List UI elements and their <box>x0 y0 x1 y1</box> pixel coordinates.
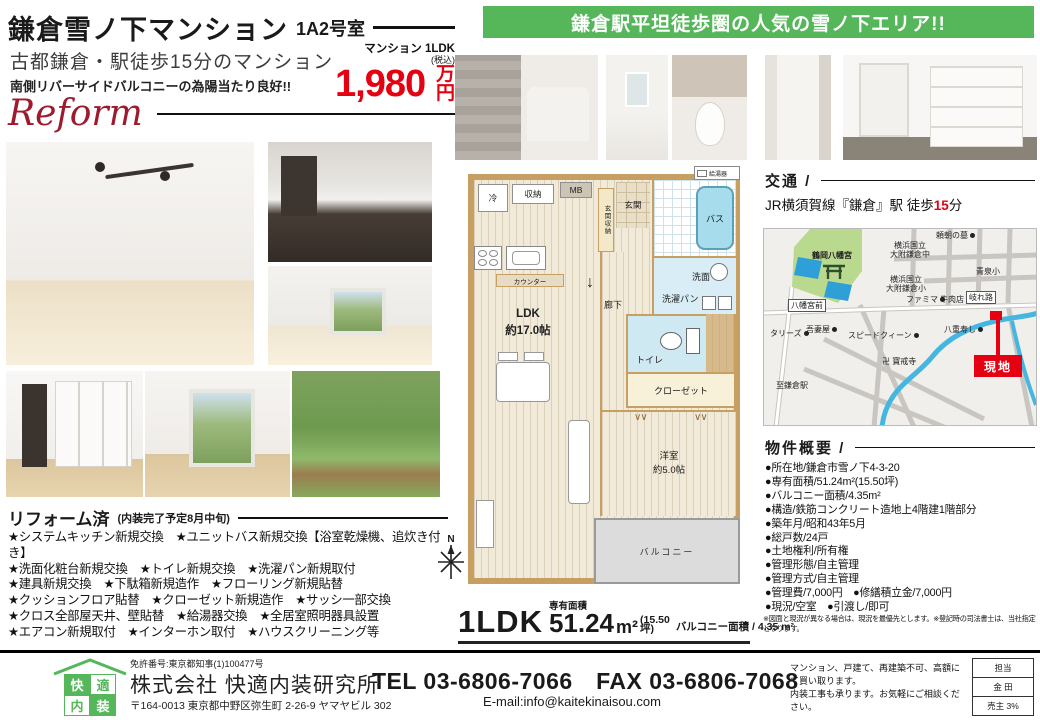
torii-icon <box>822 263 846 279</box>
staff-name: 金 田 <box>973 678 1033 697</box>
layout-type: 1LDK <box>458 608 543 636</box>
overview-item: ●バルコニー面積/4.35m² <box>765 490 1037 504</box>
footer-divider <box>0 650 1040 653</box>
photo-bathroom <box>455 55 598 160</box>
tsubo-area: (15.50坪) <box>640 616 670 636</box>
overview-item: ●土地権利/所有権 <box>765 545 1037 559</box>
compass-star-icon <box>436 545 466 579</box>
chair-icon <box>498 352 518 361</box>
page-title: 鎌倉雪ノ下マンション <box>8 8 288 47</box>
overview-heading-rule <box>855 447 1035 449</box>
access-heading: 交通 / <box>765 170 811 191</box>
toilet-bowl <box>695 102 725 146</box>
stone-tile-wall <box>455 55 521 160</box>
washer-pan-icon <box>702 296 732 310</box>
access-section-header: 交通 / <box>765 170 1035 191</box>
sales-pitch: マンション、戸建て、再建築不可、高額にて買い取ります。 内装工事も承ります。お気… <box>790 662 965 714</box>
overview-item: ●管理形態/自主管理 <box>765 559 1037 573</box>
overview-disclaimer: ※図面と現況が異なる場合は、現況を最優先とします。※登記時の司法書士は、当社指定… <box>763 614 1039 634</box>
bathtub-plan: バス <box>696 186 734 250</box>
company-name: 株式会社 快適内装研究所 <box>130 669 379 699</box>
map-label-shrine: 鶴岡八幡宮 <box>812 251 852 260</box>
site-location-badge: 現地 <box>974 355 1022 377</box>
window-mark: ∨∨ <box>694 412 707 423</box>
entrance: 玄関 <box>616 182 650 228</box>
access-route: JR横須賀線『鎌倉』駅 徒歩15分 <box>765 194 962 214</box>
photo-toilet <box>672 55 747 160</box>
toilet-label: トイレ <box>636 353 663 366</box>
map-label-temple: 卍 寶戒寺 <box>882 357 916 366</box>
bathtub <box>527 87 590 142</box>
window-box-icon <box>476 500 494 548</box>
map-label-speedqueen: スピードクィーン <box>848 331 919 340</box>
area-banner: 鎌倉駅平坦徒歩圏の人気の雪ノ下エリア!! <box>483 6 1034 38</box>
map-label-seisen-elementary: 青泉小 <box>976 267 1000 276</box>
tel-fax: TEL 03-6806-7066 FAX 03-6806-7068 <box>372 662 772 696</box>
reform-item-line: ★エアコン新規取付 ★インターホン取付 ★ハウスクリーニング等 <box>8 625 455 641</box>
spotlight-icon <box>160 171 170 181</box>
basin-icon <box>710 263 728 281</box>
pitch-line-2: 内装工事も承ります。お気軽にご相談ください。 <box>790 688 965 714</box>
fridge-space: 冷 <box>478 184 508 212</box>
overview-item: ●築年月/昭和43年5月 <box>765 518 1037 532</box>
photo-corridor <box>765 55 831 160</box>
reform-heading: リフォーム済 <box>8 505 110 530</box>
overview-section-header: 物件概要 / <box>765 437 1035 458</box>
map-label-azumaya: 吾妻屋 <box>806 325 837 334</box>
overview-heading: 物件概要 / <box>765 437 845 458</box>
map-label-to-kamakura-sta: 至鎌倉駅 <box>776 381 808 390</box>
access-heading-rule <box>821 180 1035 182</box>
commission-cell: 売主 3% <box>973 697 1033 715</box>
photo-washbasin <box>606 55 668 160</box>
overview-item: ●総戸数/24戸 <box>765 532 1037 546</box>
closet-room: クローゼット <box>626 372 736 408</box>
stove-icon <box>474 246 502 270</box>
photo-room-balcony-window <box>145 371 290 497</box>
reform-script-logo: Reform <box>8 96 143 132</box>
shoe-cabinet <box>930 66 1023 148</box>
logo-char: 装 <box>90 695 116 716</box>
toilet-side-wall <box>706 314 736 372</box>
photo-living-room-2 <box>268 266 432 365</box>
overview-item: ●管理方式/自主管理 <box>765 573 1037 587</box>
kitchen-cabinet <box>281 156 317 216</box>
balcony: バルコニー <box>594 518 740 584</box>
photo-entrance <box>843 55 1037 160</box>
walk-minutes: 15 <box>934 198 949 213</box>
overview-item: ●現況/空室 ●引渡し/即可 <box>765 601 1037 615</box>
staff-table-header: 担当 <box>973 659 1033 678</box>
balcony-window <box>189 389 256 467</box>
washbasin-mirror <box>625 72 650 108</box>
chair-icon <box>524 352 544 361</box>
logo-char: 適 <box>90 674 116 695</box>
reform-heading-rule <box>238 517 448 519</box>
entrance-storage: 玄関収納 <box>598 188 614 252</box>
map-label-tullys: タリーズ <box>770 329 809 338</box>
overview-item: ●管理費/7,000円 ●修繕積立金/7,000円 <box>765 587 1037 601</box>
map-label-bus-stop: 八幡宮前 <box>788 299 826 312</box>
logo-char: 内 <box>64 695 90 716</box>
window-mark: ∨∨ <box>634 412 647 423</box>
window <box>330 288 386 336</box>
reform-item-line: ★システムキッチン新規交換 ★ユニットバス新規交換【浴室乾燥機、追炊き付き】 <box>8 530 455 562</box>
laundry-pan-label: 洗濯パン <box>662 292 698 305</box>
compass: N <box>436 534 466 584</box>
price-type-label: マンション 1LDK <box>335 40 455 56</box>
logo-char: 快 <box>64 674 90 695</box>
map-label-sushi: 八重寿し <box>944 325 983 334</box>
ldk-label: LDK 約17.0帖 <box>478 306 578 341</box>
storage-box: 収納 <box>512 184 554 204</box>
reform-item-line: ★クッションフロア貼替 ★クローゼット新規造作 ★サッシ一部交換 <box>8 593 455 609</box>
reform-item-line: ★洗面化粧台新規交換 ★トイレ新規交換 ★洗濯パン新規取付 <box>8 562 455 578</box>
map-label-junior-high: 横浜国立 大附鎌倉中 <box>890 241 930 259</box>
kitchen-counter: カウンター <box>496 274 564 287</box>
meter-box: MB <box>560 182 592 198</box>
hallway-arrow-icon: ↓ <box>586 274 594 292</box>
hallway <box>600 252 626 410</box>
map-label-elementary: 横浜国立 大附鎌倉小 <box>886 275 926 293</box>
reform-section-header: リフォーム済 (内装完了予定8月中旬) <box>8 505 448 530</box>
photo-living-room <box>6 142 254 365</box>
company-logo: 快 適 内 装 <box>58 660 122 716</box>
dark-door <box>22 384 47 467</box>
water-heater-box: 給湯器 <box>694 166 740 180</box>
reform-script-row: Reform <box>8 96 455 132</box>
price-box: マンション 1LDK 1,980 (税込) 万円 <box>335 40 455 103</box>
water-heater-label: 給湯器 <box>709 169 727 178</box>
photo-kitchen <box>268 142 432 262</box>
area-unit: m² <box>616 619 638 635</box>
floor-plan: 冷 収納 MB 玄関収納 玄関 バス 給湯器 洗面 洗濯パン トイレ クローゼッ <box>458 170 750 594</box>
email-address: E-mail:info@kaitekinaisou.com <box>372 694 772 709</box>
dining-table-icon <box>496 362 550 402</box>
plan-summary: 1LDK 専有面積 51.24 m² (15.50坪) バルコニー面積 / 4.… <box>458 598 750 644</box>
area-map: 鶴岡八幡宮 頼朝の墓 横浜国立 大附鎌倉中 横浜国立 大附鎌倉小 青泉小 八幡宮… <box>763 228 1037 426</box>
toilet-room: トイレ <box>626 314 706 372</box>
overview-list: ●所在地/鎌倉市雪ノ下4-3-20 ●専有面積/51.24m²(15.50坪) … <box>765 462 1037 615</box>
company-address: 〒164-0013 東京都中野区弥生町 2-26-9 ヤマヤビル 302 <box>130 698 391 713</box>
photo-riverside-view <box>292 371 440 497</box>
unit-number: 1A2号室 <box>296 15 365 41</box>
ceiling-track-light <box>105 163 194 179</box>
hallway-label: 廊下 <box>604 298 622 311</box>
reform-subheading: (内装完了予定8月中旬) <box>118 510 230 526</box>
compass-north-label: N <box>436 534 466 545</box>
spotlight-icon <box>95 162 105 172</box>
catch-copy-1: 古都鎌倉・駅徒歩15分のマンション <box>10 47 333 74</box>
washroom: 洗面 洗濯パン <box>652 258 736 314</box>
overview-item: ●所在地/鎌倉市雪ノ下4-3-20 <box>765 462 1037 476</box>
overview-item: ●専有面積/51.24m²(15.50坪) <box>765 476 1037 490</box>
reform-list: ★システムキッチン新規交換 ★ユニットバス新規交換【浴室乾燥機、追炊き付き】 ★… <box>8 530 455 641</box>
map-label-grave: 頼朝の墓 <box>936 231 975 240</box>
washroom-label: 洗面 <box>692 270 710 283</box>
flyer-page: 鎌倉雪ノ下マンション 1A2号室 古都鎌倉・駅徒歩15分のマンション 南側リバー… <box>0 0 1040 720</box>
pitch-line-1: マンション、戸建て、再建築不可、高額にて買い取ります。 <box>790 662 965 688</box>
toilet-tank-icon <box>686 328 700 354</box>
reform-item-line: ★クロス全部屋天井、壁貼替 ★給湯器交換 ★全居室照明器具設置 <box>8 609 455 625</box>
overview-item: ●構造/鉄筋コンクリート造地上4階建1階部分 <box>765 504 1037 518</box>
reform-rule <box>157 113 455 116</box>
sofa-icon <box>568 420 590 504</box>
staff-table: 担当 金 田 売主 3% <box>972 658 1034 716</box>
site-pointer-line <box>996 319 1000 357</box>
map-label-wakareji: 岐れ路 <box>966 291 996 304</box>
entrance-door <box>859 63 909 137</box>
exclusive-area: 51.24 <box>549 612 614 635</box>
bathroom: バス <box>652 180 736 258</box>
toilet-bowl-icon <box>660 332 682 350</box>
title-rule <box>373 26 455 29</box>
photo-bedroom-closet <box>6 371 143 497</box>
closet-doors <box>55 381 132 467</box>
sink-icon <box>506 246 546 270</box>
water-heater-icon <box>697 170 707 177</box>
reform-item-line: ★建具新規交換 ★下駄箱新規造作 ★フローリング新規貼替 <box>8 577 455 593</box>
western-room: 洋室 約5.0帖 <box>600 410 736 516</box>
